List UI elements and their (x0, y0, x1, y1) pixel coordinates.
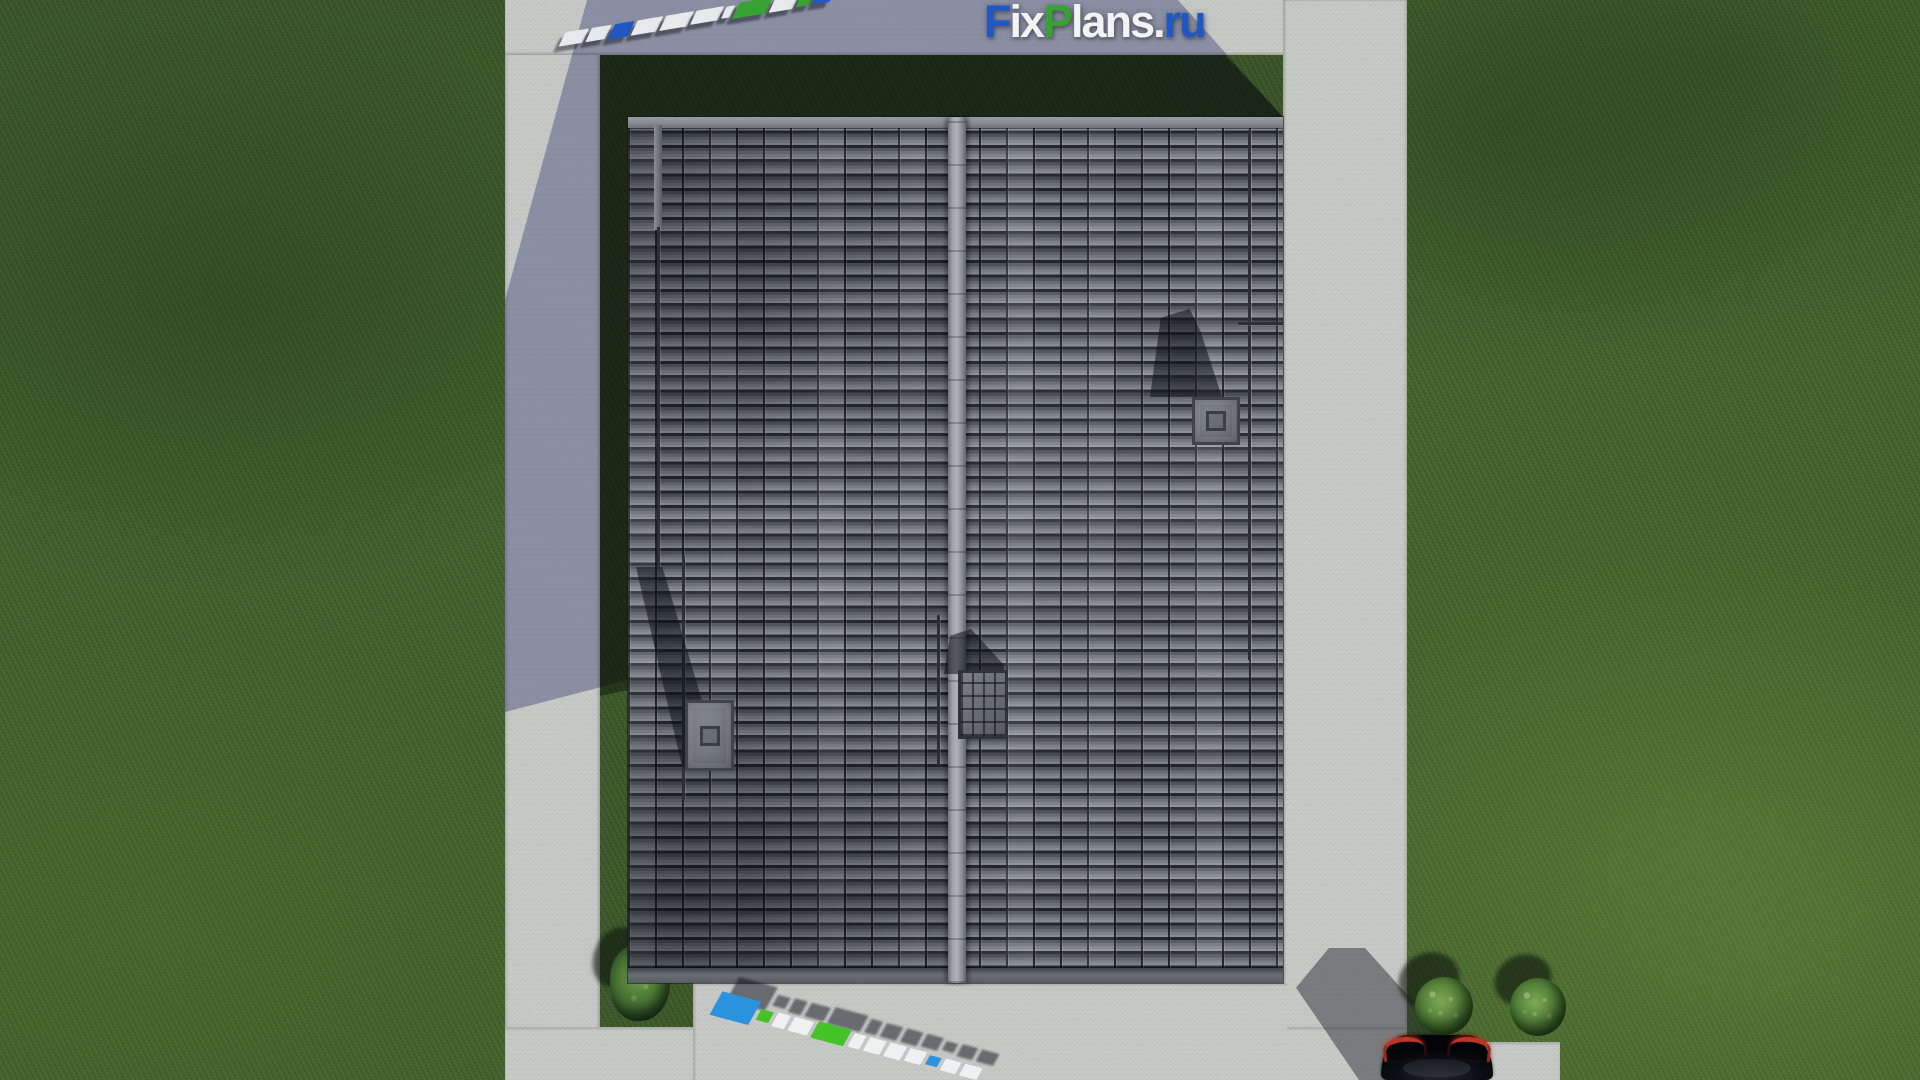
brand-letter-p: P (1043, 0, 1071, 47)
roof-rod-tick (1238, 322, 1283, 325)
car (1381, 1035, 1493, 1080)
watermark-block (863, 1037, 887, 1055)
roof-ridge-cap (948, 117, 966, 983)
watermark-block (788, 1016, 815, 1035)
watermark-block (756, 1009, 775, 1023)
gutter-downpipe-head (654, 125, 662, 230)
watermark-block (959, 1063, 983, 1079)
brand-letter-f: F (984, 0, 1010, 47)
chimney-1-flue (1206, 411, 1226, 431)
watermark-block (940, 1058, 962, 1074)
brand-watermark: FixPlans.ru (984, 0, 1205, 48)
chimney-1 (1192, 397, 1240, 445)
lawn-left-tone (0, 0, 505, 1080)
chimney-2-flue (700, 726, 720, 746)
watermark-block (810, 1021, 852, 1046)
lawn-right-tone (1407, 0, 1920, 1080)
roof-hatch (958, 670, 1008, 739)
bush-1 (1415, 977, 1473, 1035)
brand-letters-ru: ru (1164, 0, 1205, 47)
car-taillight-right (1449, 1035, 1492, 1062)
chimney-2 (685, 700, 734, 771)
car-taillight-left (1382, 1035, 1425, 1062)
watermark-block (925, 1055, 942, 1067)
roof-rod-right (1248, 130, 1251, 660)
watermark-block (904, 1048, 927, 1065)
brand-letters-lans: lans. (1071, 0, 1164, 47)
watermark-block (883, 1042, 907, 1060)
roof-rod-ridge (937, 615, 940, 765)
brand-letters-ix: ix (1010, 0, 1044, 47)
aerial-render: FixPlans.ru (0, 0, 1920, 1080)
car-rear-window (1403, 1059, 1471, 1077)
bush-2 (1510, 978, 1566, 1036)
roof-rod-left (657, 227, 660, 567)
walkway-right (1283, 0, 1407, 1080)
house-roof (628, 117, 1283, 983)
